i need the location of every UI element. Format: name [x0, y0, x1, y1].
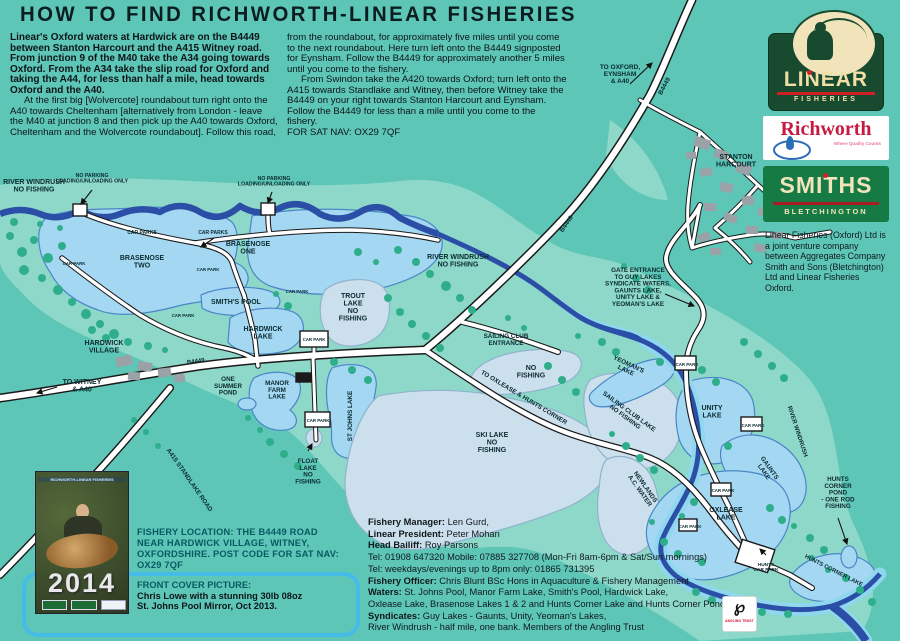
magazine-cover-photo: RICHWORTH-LINEAR FISHERIES 2014 — [36, 472, 128, 613]
river-crossing — [261, 203, 275, 215]
tree-icon — [330, 358, 338, 366]
smiths-logo-sub: BLETCHINGTON — [763, 207, 889, 216]
map-label: CAR PARK — [742, 423, 766, 428]
tree-icon — [868, 598, 876, 606]
contact-line: Tel: weekdays/evenings up to 8pm only: 0… — [368, 564, 808, 576]
tree-icon — [245, 415, 251, 421]
contact-line: Fishery Manager: Len Gurd, — [368, 517, 808, 529]
tree-icon — [143, 429, 149, 435]
smiths-bletchington-logo: SMITHS BLETCHINGTON — [763, 166, 889, 222]
directions-paragraph: from the roundabout, for approximately f… — [287, 33, 567, 75]
cover-year: 2014 — [36, 568, 128, 599]
tree-icon — [19, 265, 29, 275]
red-dot-icon — [823, 173, 828, 178]
tree-icon — [273, 291, 279, 297]
tree-icon — [373, 259, 379, 265]
map-label: GATE ENTRANCETO GUY LAKESSYNDICATE WATER… — [605, 267, 671, 308]
divider — [777, 92, 875, 95]
tree-icon — [162, 347, 168, 353]
tree-icon — [622, 442, 630, 450]
tree-icon — [88, 326, 96, 334]
angling-trust-logo: ℘ ANGLING TRUST — [722, 596, 757, 632]
building — [719, 182, 734, 194]
tree-icon — [505, 315, 511, 321]
tree-icon — [6, 232, 14, 240]
river-crossing — [73, 204, 87, 216]
map-label: TO OXFORD,EYNSHAM& A40 — [600, 64, 641, 85]
tree-icon — [441, 281, 451, 291]
map-label: A415 STANDLAKE ROAD — [165, 447, 214, 513]
map-label: CAR PARK — [712, 488, 736, 493]
joint-venture-note: Linear Fisheries (Oxford) Ltd is a joint… — [765, 230, 889, 294]
tree-icon — [394, 246, 402, 254]
map-label: STANTONHARCOURT — [716, 154, 757, 169]
linear-fisheries-logo: LINEAR FISHERIES — [763, 26, 889, 110]
tree-icon — [155, 443, 161, 449]
page-title: HOW TO FIND RICHWORTH-LINEAR FISHERIES — [20, 3, 577, 27]
tree-icon — [558, 376, 566, 384]
linear-logo-name: LINEAR — [769, 68, 883, 92]
building — [710, 248, 721, 255]
tree-icon — [348, 366, 356, 374]
manor-farm-building — [296, 373, 311, 382]
tree-icon — [284, 302, 292, 310]
tree-icon — [37, 221, 43, 227]
building — [158, 367, 172, 377]
building — [741, 195, 754, 206]
map-label: HARDWICKVILLAGE — [85, 340, 124, 355]
tree-icon — [768, 362, 776, 370]
directions-paragraph: At the first big [Wolvercote] roundabout… — [10, 96, 278, 138]
map-label: CAR PARK — [197, 267, 221, 272]
map-label: CAR PARK — [172, 313, 196, 318]
leaflet-page: { "title": "HOW TO FIND RICHWORTH-LINEAR… — [0, 0, 900, 641]
tree-icon — [396, 308, 404, 316]
tree-icon — [436, 344, 444, 352]
contact-line: Linear President: Peter Mohan — [368, 529, 808, 541]
building — [723, 212, 738, 224]
tree-icon — [572, 388, 580, 396]
tree-icon — [754, 350, 762, 358]
richworth-logo: Richworth Where Quality Counts — [763, 116, 889, 160]
tree-icon — [257, 427, 263, 433]
tree-icon — [698, 366, 706, 374]
tree-icon — [38, 274, 46, 282]
pond-hunts-corner — [841, 546, 857, 568]
divider — [773, 202, 879, 205]
tree-icon — [724, 442, 732, 450]
tree-icon — [598, 338, 606, 346]
building — [699, 167, 712, 177]
linear-logo-panel: LINEAR FISHERIES — [769, 34, 883, 110]
tree-icon — [609, 431, 615, 437]
cover-logos — [42, 600, 126, 610]
tree-icon — [266, 438, 274, 446]
map-label: SAILING CLUBENTRANCE — [484, 333, 529, 347]
tree-icon — [650, 466, 658, 474]
map-label: CAR PARK — [676, 362, 700, 367]
map-label: CAR PARKS — [127, 230, 157, 236]
pond-one-summer — [238, 398, 256, 410]
map-label: SMITH'S POOL — [211, 299, 262, 306]
tree-icon — [426, 270, 434, 278]
front-cover-text: FRONT COVER PICTURE: Chris Lowe with a s… — [137, 580, 367, 612]
contact-line: Head Bailiff: Roy Parsons — [368, 540, 808, 552]
tree-icon — [468, 306, 476, 314]
tree-icon — [820, 546, 828, 554]
map-label: CAR PARKS — [198, 230, 228, 236]
linear-logo-sub: FISHERIES — [769, 96, 883, 103]
building — [115, 354, 133, 367]
directions-column-2: from the roundabout, for approximately f… — [287, 33, 567, 138]
fishery-location-text: FISHERY LOCATION: THE B4449 ROAD NEAR HA… — [137, 527, 347, 571]
directions-column-1: Linear's Oxford waters at Hardwick are o… — [10, 33, 278, 138]
water-drop-icon — [773, 140, 811, 160]
tree-icon — [10, 218, 18, 226]
contact-line: Tel: 01908 647320 Mobile: 07885 327708 (… — [368, 552, 808, 564]
tree-icon — [384, 294, 392, 302]
tree-icon — [354, 248, 362, 256]
richworth-tagline: Where Quality Counts — [834, 141, 881, 146]
tree-icon — [712, 378, 720, 386]
tree-icon — [364, 376, 372, 384]
front-cover-heading: FRONT COVER PICTURE: — [137, 580, 367, 591]
richworth-logo-name: Richworth — [767, 118, 885, 141]
tree-icon — [30, 236, 38, 244]
tree-icon — [780, 374, 788, 382]
map-label: CAR PARK — [303, 337, 327, 342]
tree-icon — [422, 332, 430, 340]
tree-icon — [740, 338, 748, 346]
tree-icon — [766, 504, 774, 512]
tree-icon — [68, 298, 76, 306]
building — [686, 152, 696, 159]
tree-icon — [575, 333, 581, 339]
satnav-note: FOR SAT NAV: OX29 7QF — [287, 128, 567, 139]
building — [128, 372, 141, 381]
map-label: CAR PARK — [63, 261, 87, 266]
tree-icon — [57, 225, 63, 231]
tree-icon — [96, 320, 104, 328]
map-label: UNITYLAKE — [702, 405, 723, 420]
tree-icon — [144, 342, 152, 350]
map-label: ST JOHNS LAKE — [347, 391, 354, 441]
map-label: NO PARKINGLOADING/UNLOADING ONLY — [56, 173, 129, 185]
tree-icon — [53, 285, 63, 295]
tree-icon — [636, 454, 644, 462]
tree-icon — [456, 294, 464, 302]
map-label: NO PARKINGLOADING/UNLOADING ONLY — [238, 176, 311, 188]
tree-icon — [656, 358, 664, 366]
carp-photo — [44, 530, 119, 571]
tree-icon — [544, 362, 552, 370]
tree-icon — [58, 242, 66, 250]
directions-paragraph: From Swindon take the A420 towards Oxfor… — [287, 75, 567, 128]
tree-icon — [412, 258, 420, 266]
tree-icon — [280, 450, 288, 458]
tree-icon — [17, 247, 27, 257]
cover-title-strip: RICHWORTH-LINEAR FISHERIES — [38, 477, 126, 482]
map-label: CAR PARK — [286, 289, 310, 294]
directions-paragraph-bold: Linear's Oxford waters at Hardwick are o… — [10, 33, 278, 96]
red-dot-icon — [807, 70, 812, 75]
angling-trust-icon: ℘ — [723, 597, 756, 619]
map-label: CAR PARK — [307, 418, 331, 423]
building — [746, 226, 758, 234]
tree-icon — [81, 309, 91, 319]
tree-icon — [43, 253, 53, 263]
map-label: FLOATLAKENOFISHING — [295, 458, 321, 485]
building — [704, 203, 716, 211]
tree-icon — [690, 498, 698, 506]
tree-icon — [131, 417, 137, 423]
tree-icon — [408, 320, 416, 328]
tree-icon — [521, 325, 527, 331]
contact-line: Fishery Officer: Chris Blunt BSc Hons in… — [368, 576, 808, 588]
tree-icon — [124, 338, 132, 346]
tree-icon — [109, 329, 119, 339]
